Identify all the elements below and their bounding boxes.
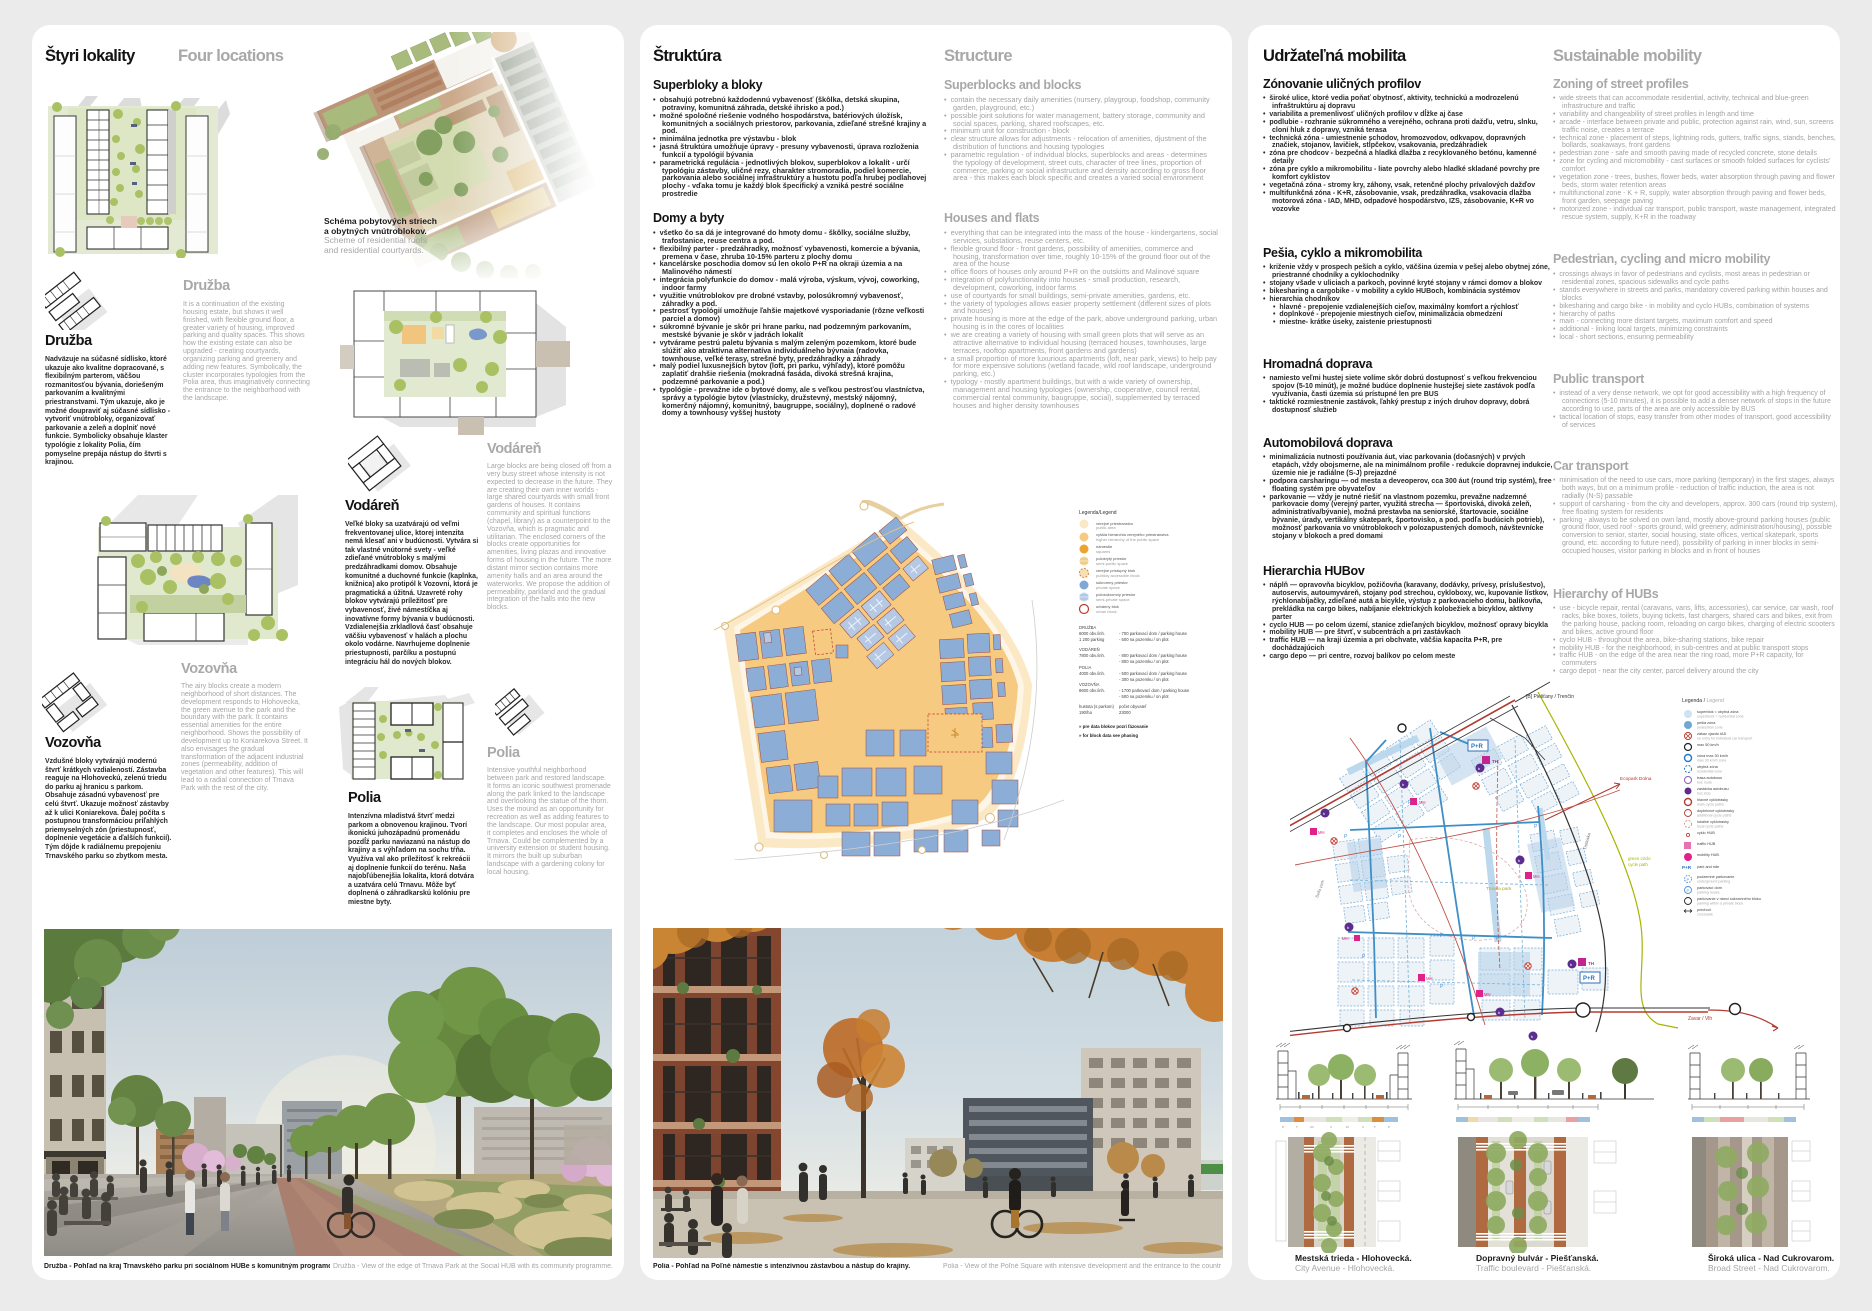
svg-text:MH: MH xyxy=(1426,976,1433,981)
svg-text:parkovací dom: parkovací dom xyxy=(1697,886,1722,890)
svg-text:additional cycle paths: additional cycle paths xyxy=(1697,814,1732,818)
svg-text:1 200 parking: 1 200 parking xyxy=(1079,637,1105,642)
svg-text:underground parking: underground parking xyxy=(1697,880,1730,884)
svg-text:7800 obv./inh.: 7800 obv./inh. xyxy=(1079,653,1105,658)
svg-text:local cycle paths: local cycle paths xyxy=(1697,825,1724,829)
svg-text:P: P xyxy=(1362,954,1366,960)
svg-text:V: V xyxy=(1330,1125,1332,1129)
svg-text:Trstínska: Trstínska xyxy=(1582,832,1591,850)
svg-text:POLIA: POLIA xyxy=(1079,665,1092,670)
svg-text:P: P xyxy=(1534,824,1538,830)
svg-text:TH: TH xyxy=(1588,961,1594,966)
svg-text:obytná zóna: obytná zóna xyxy=(1697,765,1719,769)
svg-text:- 800 na pozemku / on plot: - 800 na pozemku / on plot xyxy=(1119,659,1169,664)
svg-text:T: T xyxy=(1374,1125,1376,1129)
svg-text:Legenda/Legend: Legenda/Legend xyxy=(1079,510,1117,516)
svg-text:MH: MH xyxy=(1318,830,1325,835)
svg-text:urban block: urban block xyxy=(1096,609,1117,614)
svg-text:parkovanie v rámci súkromného: parkovanie v rámci súkromného bloku xyxy=(1697,897,1761,901)
svg-text:higher hierarchy of the public: higher hierarchy of the public space xyxy=(1096,537,1160,542)
svg-text:semi-public space: semi-public space xyxy=(1096,561,1129,566)
svg-text:4000 obv./inh.: 4000 obv./inh. xyxy=(1079,671,1105,676)
svg-text:traffic HUB: traffic HUB xyxy=(1697,842,1716,846)
svg-text:23000: 23000 xyxy=(1119,710,1131,715)
svg-text:Bella park: Bella park xyxy=(1314,878,1325,898)
svg-text:prechod: prechod xyxy=(1697,908,1711,912)
svg-text:pedestrian zone: pedestrian zone xyxy=(1697,726,1723,730)
svg-text:cyklo HUB: cyklo HUB xyxy=(1697,831,1715,835)
svg-text:- 500 na pozemku / on plot: - 500 na pozemku / on plot xyxy=(1119,694,1169,699)
svg-text:superblok = obytná zóna: superblok = obytná zóna xyxy=(1697,710,1739,714)
svg-text:VODÁREŇ: VODÁREŇ xyxy=(1079,647,1100,652)
svg-text:zóna max 30 km/h: zóna max 30 km/h xyxy=(1697,754,1728,758)
svg-text:zastávka autobusu: zastávka autobusu xyxy=(1697,787,1729,791)
svg-text:VOZOVŇA: VOZOVŇA xyxy=(1079,682,1100,687)
svg-text:green circle: green circle xyxy=(1628,856,1651,861)
svg-text:Ch: Ch xyxy=(1310,1125,1314,1129)
svg-text:max 50 km/h: max 50 km/h xyxy=(1697,743,1719,747)
svg-text:Legenda / Legend: Legenda / Legend xyxy=(1682,698,1724,704)
svg-text:cycle path: cycle path xyxy=(1628,862,1648,867)
svg-text:P+R: P+R xyxy=(1471,744,1484,750)
svg-text:190/ha: 190/ha xyxy=(1079,710,1092,715)
svg-text:- 500 na pozemku / on plot: - 500 na pozemku / on plot xyxy=(1119,637,1169,642)
svg-text:P: P xyxy=(1398,834,1402,840)
svg-text:P: P xyxy=(1687,888,1690,893)
svg-text:P+R: P+R xyxy=(1583,976,1596,982)
svg-text:P: P xyxy=(1282,1125,1284,1129)
svg-text:lokálné cyklotrasky: lokálné cyklotrasky xyxy=(1697,820,1729,824)
svg-text:MH: MH xyxy=(1484,992,1491,997)
svg-text:trasa autobusu: trasa autobusu xyxy=(1697,776,1722,780)
svg-text:P: P xyxy=(1388,1125,1390,1129)
svg-text:doplnkové cyklotrasky: doplnkové cyklotrasky xyxy=(1697,809,1734,813)
svg-text:no entry for individual car tr: no entry for individual car transport xyxy=(1697,737,1752,741)
svg-text:P: P xyxy=(1687,877,1690,882)
svg-text:park and ride: park and ride xyxy=(1697,865,1719,869)
svg-text:počet obyvateľ: počet obyvateľ xyxy=(1119,704,1147,709)
svg-text:podzemné parkovanie: podzemné parkovanie xyxy=(1697,875,1734,879)
svg-text:6000 obv./inh.: 6000 obv./inh. xyxy=(1079,631,1105,636)
svg-text:Zavar / Vlh: Zavar / Vlh xyxy=(1688,1016,1712,1022)
svg-text:- 700 parkovací dom / parking: - 700 parkovací dom / parking house xyxy=(1119,631,1188,636)
svg-text:publicly accessible block: publicly accessible block xyxy=(1096,573,1140,578)
svg-text:T: T xyxy=(1296,1125,1298,1129)
svg-text:max 30 km/h zone: max 30 km/h zone xyxy=(1697,759,1726,763)
svg-text:- 300 na pozemku / on plot: - 300 na pozemku / on plot xyxy=(1119,677,1169,682)
svg-text:residential zone: residential zone xyxy=(1697,770,1722,774)
svg-text:pešia zóna: pešia zóna xyxy=(1697,721,1716,725)
svg-text:private space: private space xyxy=(1096,585,1121,590)
svg-text:bus stop: bus stop xyxy=(1697,792,1711,796)
svg-text:M: M xyxy=(1346,1125,1349,1129)
svg-text:MH: MH xyxy=(1419,800,1426,805)
svg-text:parking within a private block: parking within a private block xyxy=(1697,902,1743,906)
svg-text:» pre data blokov pozri fázova: » pre data blokov pozri fázovanie xyxy=(1079,724,1149,729)
svg-text:hlavné cyklotrasky: hlavné cyklotrasky xyxy=(1697,798,1728,802)
svg-text:squares: squares xyxy=(1096,549,1110,554)
svg-text:zákaz vjazdu IAD: zákaz vjazdu IAD xyxy=(1697,732,1727,736)
svg-text:semi-private space: semi-private space xyxy=(1096,597,1130,602)
svg-text:mobility HUB: mobility HUB xyxy=(1697,853,1719,857)
svg-text:- 800 parkovací dom / parking: - 800 parkovací dom / parking house xyxy=(1119,653,1188,658)
svg-text:V: V xyxy=(1362,1125,1364,1129)
svg-text:superblock = residential zone: superblock = residential zone xyxy=(1697,715,1744,719)
svg-text:parking house: parking house xyxy=(1697,891,1720,895)
svg-text:8600 obv./inh.: 8600 obv./inh. xyxy=(1079,688,1105,693)
svg-text:- 500 parkovací dom / parking: - 500 parkovací dom / parking house xyxy=(1119,671,1188,676)
svg-text:main cycle paths: main cycle paths xyxy=(1697,803,1724,807)
svg-text:public area: public area xyxy=(1096,525,1116,530)
svg-text:Trnava park: Trnava park xyxy=(1486,886,1512,892)
svg-text:MH: MH xyxy=(1533,874,1540,879)
svg-text:DRUŽBA: DRUŽBA xyxy=(1079,625,1096,630)
svg-text:crosswalk: crosswalk xyxy=(1697,913,1713,917)
svg-text:P: P xyxy=(1344,834,1348,840)
svg-text:» for block data see phasing: » for block data see phasing xyxy=(1079,733,1138,738)
svg-text:P: P xyxy=(1472,936,1476,942)
svg-text:P+R: P+R xyxy=(1682,865,1692,870)
svg-text:- 1700 parkovací dom / parking: - 1700 parkovací dom / parking house xyxy=(1119,688,1190,693)
svg-text:bus route: bus route xyxy=(1697,781,1712,785)
svg-text:MH: MH xyxy=(1342,936,1349,941)
svg-text:hustota (s parkom): hustota (s parkom) xyxy=(1079,704,1115,709)
svg-text:Ecopark Dolna: Ecopark Dolna xyxy=(1620,776,1652,782)
svg-text:[B] Piešťany / Trenčín: [B] Piešťany / Trenčín xyxy=(1526,694,1574,700)
svg-text:TH: TH xyxy=(1492,759,1498,764)
